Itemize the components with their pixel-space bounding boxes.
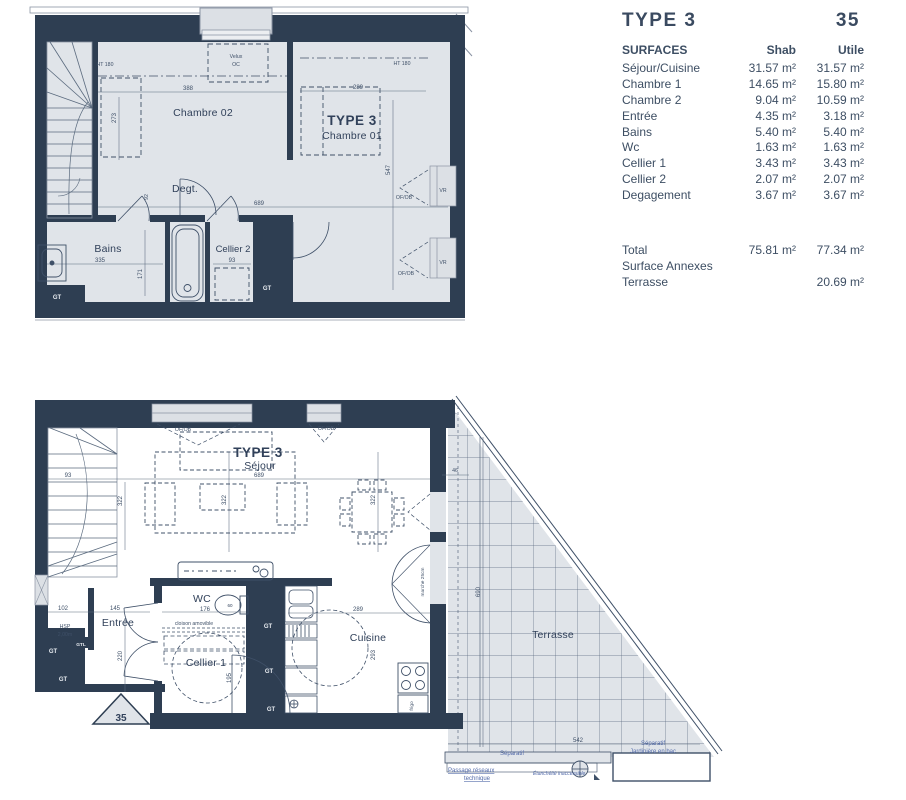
room-label-bains: Bains (94, 243, 121, 255)
room-label-chambre01: Chambre 01 (322, 130, 382, 142)
row-label: Degagement (622, 188, 728, 204)
surface-table-header: SURFACES Shab Utile (622, 43, 864, 59)
staircase-lower (48, 428, 117, 577)
row-utile: 15.80 m² (796, 77, 864, 93)
row-utile: 3.67 m² (796, 188, 864, 204)
dim-195: 195 (227, 672, 233, 683)
dim-289-lower: 289 (353, 607, 364, 613)
dim-145: 145 (110, 606, 121, 612)
dim-46: 46 (452, 468, 458, 474)
dim-92: 92 (144, 194, 150, 200)
dim-690: 690 (476, 586, 482, 597)
table-row: Wc 1.63 m² 1.63 m² (622, 140, 864, 156)
room-label-cuisine: Cuisine (350, 632, 386, 644)
dim-171: 171 (138, 268, 144, 279)
row-shab: 3.43 m² (728, 156, 796, 172)
table-title: TYPE 3 (622, 10, 696, 32)
room-label-wc: WC (193, 593, 211, 605)
label-velux-oc: OC (232, 62, 240, 68)
room-label-degt: Degt. (172, 183, 198, 195)
dim-102: 102 (58, 606, 69, 612)
label-60: 60 (227, 603, 233, 608)
dim-93-upper: 93 (229, 258, 236, 264)
row-utile: 3.43 m² (796, 156, 864, 172)
surface-table-head: TYPE 3 35 (622, 10, 864, 32)
label-jardiniere: Jardinière en bac (630, 749, 676, 755)
row-label: Entrée (622, 109, 728, 125)
lower-floor-plan: TYPE 3 Séjour 689 93 322 322 322 OF/OB O… (28, 392, 728, 797)
row-label: Chambre 1 (622, 77, 728, 93)
row-shab: 2.07 m² (728, 172, 796, 188)
row-utile: 1.63 m² (796, 140, 864, 156)
label-ht180-right: HT 180 (394, 61, 411, 67)
total-shab: 75.81 m² (728, 243, 796, 259)
row-shab: 3.67 m² (728, 188, 796, 204)
annexes-row: Surface Annexes (622, 259, 864, 275)
label-gt1: GT (53, 295, 62, 301)
row-utile: 3.18 m² (796, 109, 864, 125)
surface-table: TYPE 3 35 SURFACES Shab Utile Séjour/Cui… (622, 10, 864, 291)
table-row: Bains 5.40 m² 5.40 m² (622, 125, 864, 141)
room-label-type3-upper: TYPE 3 (327, 113, 377, 128)
dim-322b: 322 (222, 494, 228, 505)
room-label-cellier2: Cellier 2 (216, 244, 251, 255)
col-surfaces: SURFACES (622, 43, 728, 59)
label-vr2: VR (439, 260, 446, 266)
col-utile: Utile (796, 43, 864, 59)
kitchen-fixtures (285, 586, 317, 713)
col-shab: Shab (728, 43, 796, 59)
stove (292, 610, 428, 713)
label-passage-reseaux: Passage réseaux (448, 768, 494, 774)
sideboard (178, 562, 273, 580)
dim-322a: 322 (118, 495, 124, 506)
dim-689-upper: 689 (254, 201, 265, 207)
dim-289-upper: 289 (353, 85, 364, 91)
row-shab: 5.40 m² (728, 125, 796, 141)
label-separatif1: Séparatif (500, 751, 524, 757)
label-marche-25cm: marche 25cm (420, 567, 426, 596)
label-ofob-lower1: OF/OB (175, 427, 192, 433)
row-label: Cellier 1 (622, 156, 728, 172)
row-label: Cellier 2 (622, 172, 728, 188)
row-label: Chambre 2 (622, 93, 728, 109)
terrasse-utile: 20.69 m² (796, 275, 864, 291)
row-shab: 4.35 m² (728, 109, 796, 125)
row-utile: 2.07 m² (796, 172, 864, 188)
dim-388: 388 (183, 86, 194, 92)
dim-542: 542 (573, 738, 584, 744)
table-row: Séjour/Cuisine 31.57 m² 31.57 m² (622, 61, 864, 77)
room-label-sejour: Séjour (244, 460, 276, 472)
table-unit-number: 35 (836, 10, 860, 32)
label-cloison-amovible: cloison amovible (175, 621, 213, 627)
label-gt-right3: GT (267, 707, 276, 713)
row-utile: 5.40 m² (796, 125, 864, 141)
dim-547: 547 (386, 164, 392, 175)
table-row: Degagement 3.67 m² 3.67 m² (622, 188, 864, 204)
terrace-openings (392, 492, 446, 623)
room-label-entree: Entrée (102, 617, 134, 629)
row-label: Wc (622, 140, 728, 156)
total-utile: 77.34 m² (796, 243, 864, 259)
dim-176: 176 (200, 607, 211, 613)
floorplan-page: { "table": { "title": "TYPE 3", "unit_nu… (0, 0, 906, 800)
terrasse-row: Terrasse 20.69 m² (622, 275, 864, 291)
row-utile: 10.59 m² (796, 93, 864, 109)
label-ht180-left: HT 180 (97, 62, 114, 68)
upper-floor-plan: Chambre 02 TYPE 3 Chambre 01 Degt. Bains… (28, 0, 478, 330)
row-shab: 14.65 m² (728, 77, 796, 93)
label-ofob2: OF/OB (398, 271, 415, 277)
label-gt-left2: GT (59, 677, 68, 683)
label-unit-35: 35 (115, 713, 127, 724)
terrace (448, 396, 722, 757)
label-ofob-lower2: OF/OB (318, 426, 335, 432)
label-hsp: HSP (60, 624, 71, 630)
label-gt-left1: GT (49, 649, 58, 655)
label-frigo: frigo (409, 701, 415, 711)
surface-rows: Séjour/Cuisine 31.57 m² 31.57 m² Chambre… (622, 61, 864, 204)
room-label-terrasse: Terrasse (532, 629, 574, 641)
table-row: Cellier 2 2.07 m² 2.07 m² (622, 172, 864, 188)
row-label: Séjour/Cuisine (622, 61, 728, 77)
cloison-amovible-line (162, 628, 246, 632)
label-hsp-value: 2,00m (58, 632, 72, 638)
row-shab: 9.04 m² (728, 93, 796, 109)
dim-293: 293 (371, 649, 377, 660)
velux-shaft (200, 8, 272, 40)
dim-273: 273 (112, 112, 118, 123)
room-label-type3-lower: TYPE 3 (233, 445, 283, 460)
dim-322c: 322 (371, 494, 377, 505)
label-velux: Velux (230, 54, 243, 60)
label-gt-right1: GT (264, 624, 273, 630)
table-row: Chambre 2 9.04 m² 10.59 m² (622, 93, 864, 109)
label-vr1: VR (439, 188, 446, 194)
label-separatif2: Séparatif (641, 741, 665, 747)
total-row: Total 75.81 m² 77.34 m² (622, 243, 864, 259)
row-label: Bains (622, 125, 728, 141)
table-row: Entrée 4.35 m² 3.18 m² (622, 109, 864, 125)
terrasse-label: Terrasse (622, 275, 728, 291)
dim-689-lower: 689 (254, 473, 265, 479)
row-shab: 1.63 m² (728, 140, 796, 156)
label-technique: technique (464, 776, 491, 782)
label-ofob1: OF/OB (396, 195, 413, 201)
room-label-chambre02: Chambre 02 (173, 107, 233, 119)
dim-93-lower: 93 (65, 473, 72, 479)
row-shab: 31.57 m² (728, 61, 796, 77)
dim-335: 335 (95, 258, 106, 264)
label-etancheite: Étanchéité inaccessible (533, 770, 585, 777)
label-gt-right2: GT (265, 669, 274, 675)
label-gtl: GTL (76, 642, 86, 648)
dim-220: 220 (118, 650, 124, 661)
row-utile: 31.57 m² (796, 61, 864, 77)
total-label: Total (622, 243, 728, 259)
table-row: Chambre 1 14.65 m² 15.80 m² (622, 77, 864, 93)
label-gt2: GT (263, 286, 272, 292)
terrasse-shab (728, 275, 796, 291)
annexes-label: Surface Annexes (622, 259, 864, 275)
table-row: Cellier 1 3.43 m² 3.43 m² (622, 156, 864, 172)
room-label-cellier1: Cellier 1 (186, 657, 226, 669)
